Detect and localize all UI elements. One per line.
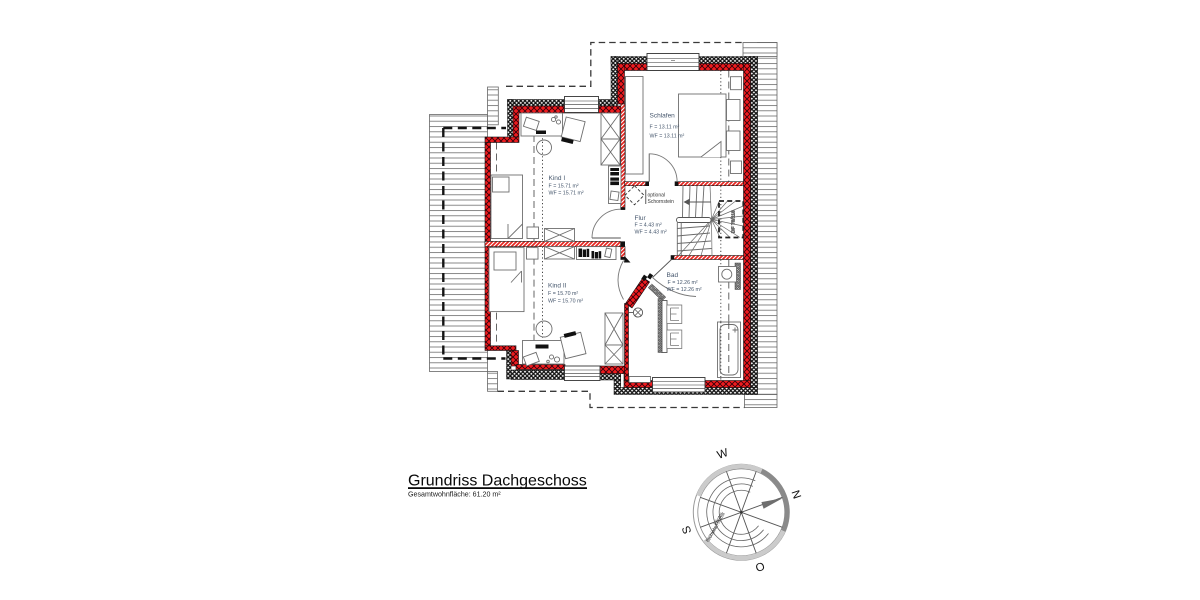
svg-text:Schlafen: Schlafen bbox=[650, 113, 676, 120]
svg-text:F = 12.26 m²: F = 12.26 m² bbox=[668, 280, 698, 286]
svg-text:F = 4.43 m²: F = 4.43 m² bbox=[635, 223, 662, 229]
svg-text:Schornstein: Schornstein bbox=[648, 199, 675, 205]
svg-text:WF = 12.26 m²: WF = 12.26 m² bbox=[667, 287, 702, 293]
svg-text:Bad: Bad bbox=[667, 272, 679, 279]
svg-text:F = 13.11 m²: F = 13.11 m² bbox=[650, 125, 680, 131]
svg-text:Flur: Flur bbox=[635, 215, 647, 222]
svg-text:F = 15.70 m²: F = 15.70 m² bbox=[548, 291, 578, 297]
svg-text:WF = 13.11 m²: WF = 13.11 m² bbox=[650, 134, 685, 140]
svg-text:Gesamtwohnfläche: 61.20 m²: Gesamtwohnfläche: 61.20 m² bbox=[408, 491, 501, 499]
svg-text:optional: optional bbox=[648, 192, 666, 198]
svg-text:DF 78/118: DF 78/118 bbox=[731, 210, 736, 233]
svg-text:Kind I: Kind I bbox=[549, 175, 566, 182]
svg-text:WF = 4.43 m²: WF = 4.43 m² bbox=[635, 229, 667, 235]
svg-text:Grundriss Dachgeschoss: Grundriss Dachgeschoss bbox=[408, 473, 587, 490]
svg-text:Kind II: Kind II bbox=[548, 283, 567, 290]
svg-text:WF = 15.71 m²: WF = 15.71 m² bbox=[549, 191, 584, 197]
svg-text:WF = 15.70 m²: WF = 15.70 m² bbox=[548, 299, 583, 305]
svg-text:F = 15.71 m²: F = 15.71 m² bbox=[549, 183, 579, 189]
